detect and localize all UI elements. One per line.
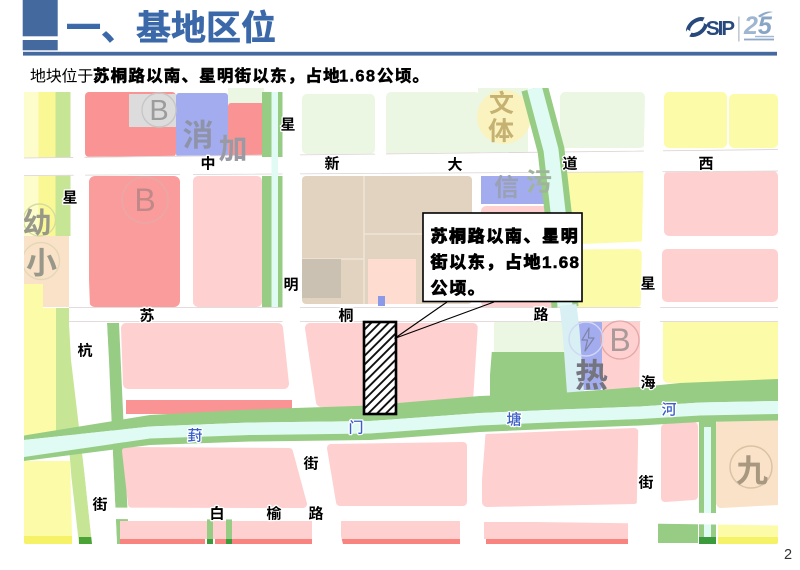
svg-text:B: B [149, 95, 168, 127]
svg-text:B: B [609, 322, 630, 358]
svg-text:SIP: SIP [706, 17, 735, 40]
svg-text:1.68: 1.68 [339, 68, 375, 86]
svg-text:B: B [134, 182, 155, 218]
svg-text:1.68: 1.68 [542, 253, 579, 272]
svg-text:2: 2 [784, 547, 792, 563]
